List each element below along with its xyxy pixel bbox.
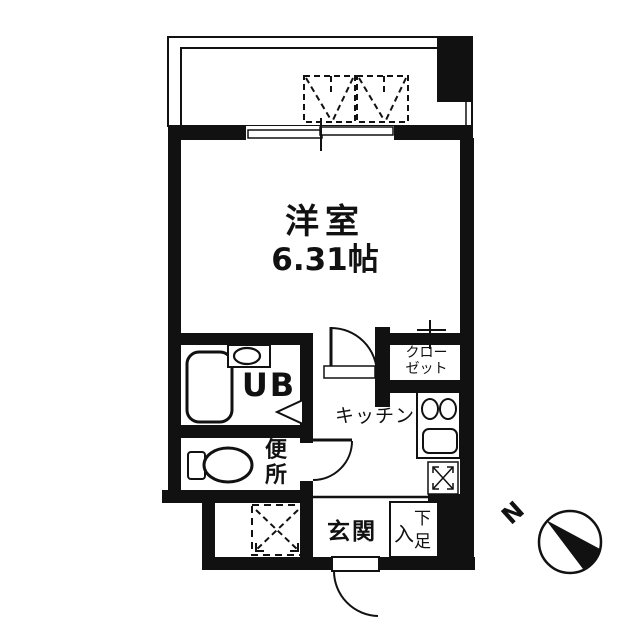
main-room-door-threshold	[324, 366, 375, 378]
front-door-leaf	[332, 557, 379, 571]
toilet-door-arc	[313, 441, 352, 480]
wall-ub-top	[181, 333, 303, 345]
front-door-arc	[334, 571, 378, 616]
toilet-label: 便 所	[263, 438, 289, 488]
kitchen-label: キッチン	[312, 401, 438, 428]
balcony-outline	[168, 37, 472, 126]
balcony-inner-rail	[181, 48, 437, 126]
balcony-pillar	[437, 38, 473, 102]
shoe-box-label-in: 入	[394, 518, 414, 547]
main-room-size-label: 6.31帖	[235, 234, 415, 279]
window-pane-right	[320, 127, 393, 135]
bath-sink-bowl	[234, 348, 260, 364]
wall-left	[168, 126, 181, 500]
shoe-box-label-shita: 下	[414, 504, 431, 529]
closet-label-line2: ゼット	[391, 361, 462, 377]
wall-bottom-left	[202, 557, 333, 570]
wall-top-right	[394, 126, 473, 140]
bathtub	[187, 352, 232, 422]
wall-wc-bottom	[162, 490, 313, 503]
closet-label: クロー ゼット	[391, 345, 462, 377]
wall-shoe-right	[438, 498, 474, 570]
toilet-label-char2: 所	[263, 463, 289, 488]
wall-kitchen-left-lower	[300, 481, 313, 505]
fridge-space-symbol	[428, 462, 458, 494]
entrance-label: 玄関	[313, 512, 391, 546]
toilet-label-char1: 便	[263, 438, 289, 463]
window-pane-left	[248, 130, 322, 138]
toilet-bowl	[204, 448, 252, 482]
wall-closet-top	[375, 333, 473, 345]
floorplan-canvas: 洋室 6.31帖 キッチン クロー ゼット UB 便 所 玄関 入 下 足 N	[0, 0, 640, 640]
washer-space-symbol	[252, 505, 302, 555]
compass-needle	[546, 520, 600, 569]
shoe-box-label-soku: 足	[414, 527, 431, 552]
ac-unit-dashed-boxes	[304, 76, 408, 122]
toilet-tank	[188, 452, 205, 479]
unit-bath-label: UB	[241, 366, 297, 404]
closet-label-line1: クロー	[391, 345, 462, 361]
wall-ub-wc-divider	[168, 425, 313, 438]
